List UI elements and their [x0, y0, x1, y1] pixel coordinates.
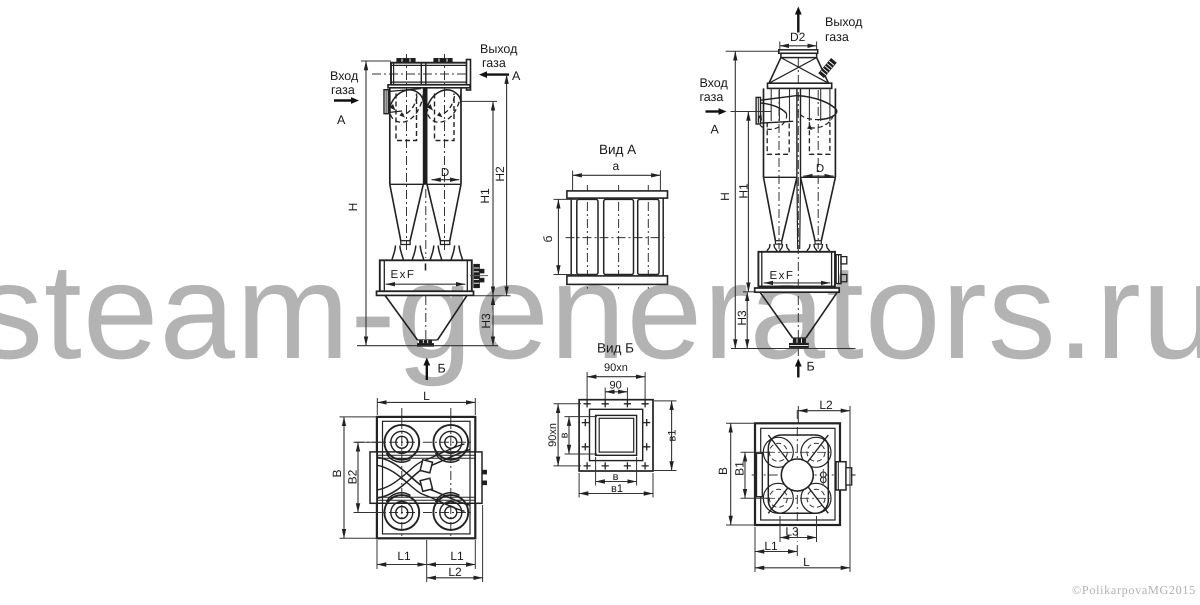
svg-text:D: D [441, 167, 449, 179]
svg-text:L1: L1 [764, 539, 778, 553]
svg-text:H3: H3 [735, 310, 749, 326]
svg-text:в1: в1 [667, 430, 679, 442]
svg-text:steam-generators.ru: steam-generators.ru [0, 235, 1200, 387]
svg-text:Б: Б [438, 362, 446, 376]
svg-text:а: а [613, 159, 620, 173]
svg-text:H: H [718, 192, 732, 201]
svg-text:Выход: Выход [825, 15, 863, 29]
svg-text:H1: H1 [737, 183, 751, 199]
svg-text:Вид Б: Вид Б [597, 341, 634, 356]
svg-text:L1: L1 [397, 549, 411, 563]
svg-text:90: 90 [610, 380, 622, 392]
svg-text:D2: D2 [790, 30, 806, 44]
svg-text:газа: газа [825, 30, 849, 44]
svg-text:ExF: ExF [391, 269, 416, 281]
svg-text:D: D [816, 163, 824, 175]
svg-text:А: А [337, 113, 346, 127]
svg-text:Вход: Вход [700, 76, 729, 90]
svg-text:L2: L2 [448, 565, 462, 579]
svg-text:газа: газа [700, 90, 724, 104]
svg-text:B2: B2 [346, 469, 360, 484]
svg-text:L1: L1 [450, 549, 464, 563]
svg-text:Б: Б [807, 360, 815, 374]
svg-text:А: А [512, 69, 521, 83]
svg-text:газа: газа [331, 83, 355, 97]
svg-text:б: б [541, 235, 555, 242]
svg-text:H1: H1 [478, 188, 492, 204]
svg-text:90xn: 90xn [604, 362, 628, 374]
svg-text:B: B [330, 469, 344, 477]
svg-text:H2: H2 [493, 166, 507, 182]
svg-text:L2: L2 [819, 398, 833, 412]
svg-text:H: H [346, 203, 360, 212]
svg-text:Вид А: Вид А [599, 142, 636, 157]
svg-text:в1: в1 [611, 483, 623, 495]
svg-text:Вход: Вход [330, 69, 359, 83]
svg-text:L: L [803, 555, 810, 569]
svg-text:А: А [711, 123, 720, 137]
svg-text:©PolikarpovaMG2015: ©PolikarpovaMG2015 [1072, 583, 1196, 597]
svg-text:ExF: ExF [770, 270, 795, 282]
svg-text:в: в [613, 471, 619, 483]
svg-text:90xn: 90xn [547, 423, 559, 447]
svg-text:B: B [716, 467, 730, 475]
svg-text:L: L [423, 389, 430, 403]
svg-text:B1: B1 [733, 461, 747, 476]
svg-text:газа: газа [482, 56, 506, 70]
svg-text:Выход: Выход [480, 42, 518, 56]
svg-text:в: в [559, 432, 571, 438]
svg-text:H3: H3 [479, 313, 493, 329]
svg-text:L3: L3 [785, 525, 799, 539]
